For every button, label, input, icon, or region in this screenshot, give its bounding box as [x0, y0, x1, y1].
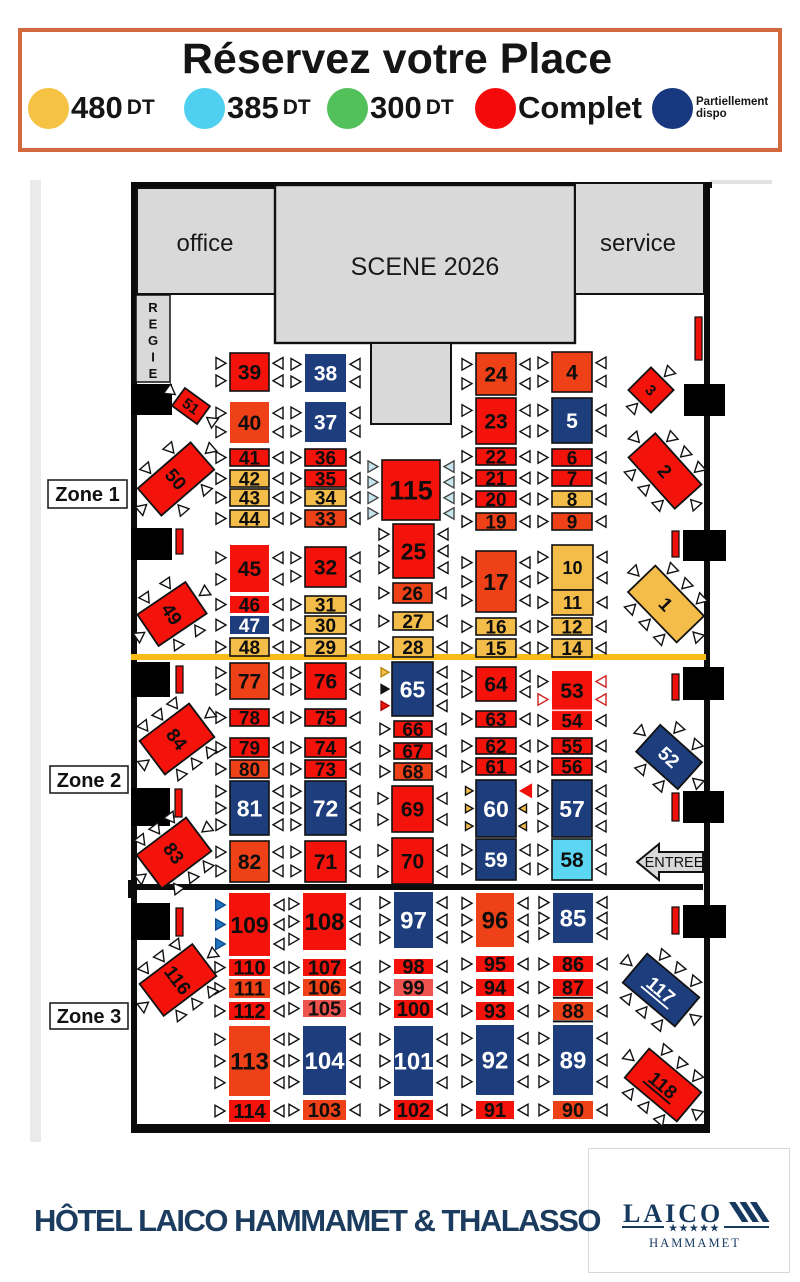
- svg-text:22: 22: [485, 447, 506, 468]
- svg-text:29: 29: [315, 638, 336, 659]
- svg-text:office: office: [177, 230, 234, 257]
- svg-text:42: 42: [239, 469, 260, 490]
- svg-text:62: 62: [485, 737, 506, 758]
- svg-text:101: 101: [393, 1049, 433, 1076]
- svg-text:4: 4: [566, 362, 578, 385]
- svg-text:15: 15: [485, 639, 507, 660]
- svg-text:34: 34: [315, 488, 337, 509]
- svg-text:25: 25: [401, 538, 427, 564]
- svg-text:26: 26: [402, 584, 423, 605]
- svg-text:82: 82: [238, 851, 261, 874]
- svg-text:54: 54: [561, 711, 583, 732]
- svg-text:58: 58: [560, 849, 584, 872]
- svg-text:67: 67: [402, 742, 423, 763]
- svg-text:37: 37: [314, 412, 337, 435]
- svg-text:59: 59: [484, 849, 507, 872]
- svg-text:70: 70: [401, 851, 424, 874]
- svg-text:105: 105: [308, 999, 341, 1021]
- svg-text:74: 74: [315, 738, 337, 759]
- svg-text:86: 86: [562, 954, 584, 976]
- svg-text:95: 95: [484, 954, 506, 976]
- svg-text:21: 21: [485, 469, 507, 490]
- svg-text:38: 38: [314, 363, 338, 386]
- svg-text:110: 110: [233, 958, 265, 980]
- svg-text:63: 63: [485, 710, 506, 731]
- svg-text:7: 7: [567, 469, 578, 490]
- svg-text:47: 47: [239, 616, 260, 637]
- svg-text:79: 79: [239, 738, 260, 759]
- svg-text:112: 112: [233, 1001, 265, 1023]
- svg-text:100: 100: [397, 999, 430, 1021]
- svg-text:E: E: [149, 317, 158, 332]
- svg-text:106: 106: [308, 978, 341, 1000]
- svg-text:57: 57: [559, 796, 585, 822]
- svg-text:111: 111: [234, 979, 265, 1001]
- svg-text:43: 43: [239, 488, 260, 509]
- svg-text:94: 94: [484, 978, 507, 1000]
- svg-text:32: 32: [314, 557, 337, 580]
- svg-text:G: G: [148, 333, 158, 348]
- svg-text:40: 40: [238, 412, 261, 435]
- svg-text:46: 46: [239, 595, 260, 616]
- svg-text:64: 64: [484, 674, 508, 697]
- svg-text:108: 108: [304, 909, 344, 936]
- svg-text:E: E: [149, 366, 158, 381]
- svg-text:Zone 1: Zone 1: [55, 484, 119, 506]
- svg-text:16: 16: [485, 617, 506, 638]
- svg-text:10: 10: [562, 558, 582, 578]
- svg-text:28: 28: [402, 638, 423, 659]
- svg-text:SCENE 2026: SCENE 2026: [351, 253, 500, 281]
- svg-text:R: R: [148, 300, 158, 315]
- svg-text:48: 48: [239, 638, 260, 659]
- svg-text:5: 5: [566, 410, 578, 433]
- svg-text:8: 8: [567, 490, 578, 511]
- svg-text:97: 97: [400, 908, 427, 935]
- svg-text:77: 77: [238, 671, 261, 694]
- svg-text:39: 39: [238, 362, 261, 385]
- svg-text:31: 31: [315, 595, 337, 616]
- svg-text:68: 68: [402, 762, 423, 783]
- svg-text:88: 88: [562, 1001, 584, 1023]
- svg-text:27: 27: [402, 612, 423, 633]
- svg-text:90: 90: [562, 1100, 584, 1122]
- svg-text:104: 104: [304, 1048, 345, 1075]
- svg-text:75: 75: [315, 708, 337, 729]
- svg-text:30: 30: [315, 616, 336, 637]
- svg-text:14: 14: [561, 639, 583, 660]
- svg-text:33: 33: [315, 509, 336, 530]
- svg-text:98: 98: [402, 957, 424, 979]
- svg-text:69: 69: [401, 799, 424, 822]
- svg-text:6: 6: [567, 448, 578, 469]
- svg-text:87: 87: [562, 978, 584, 1000]
- svg-text:24: 24: [484, 364, 508, 387]
- svg-text:19: 19: [485, 512, 506, 533]
- svg-text:89: 89: [560, 1048, 587, 1075]
- svg-text:23: 23: [484, 411, 507, 434]
- svg-text:60: 60: [483, 796, 509, 822]
- svg-text:61: 61: [485, 757, 507, 778]
- svg-text:73: 73: [315, 760, 336, 781]
- svg-text:17: 17: [483, 569, 509, 595]
- svg-text:76: 76: [314, 671, 337, 694]
- svg-text:20: 20: [485, 490, 506, 511]
- svg-text:Zone 2: Zone 2: [57, 770, 121, 792]
- svg-text:HAMMAMET: HAMMAMET: [649, 1236, 741, 1250]
- svg-text:66: 66: [402, 720, 423, 741]
- svg-text:55: 55: [561, 737, 583, 758]
- svg-text:109: 109: [230, 912, 268, 938]
- svg-text:80: 80: [239, 760, 260, 781]
- svg-text:65: 65: [400, 676, 426, 702]
- svg-text:12: 12: [561, 617, 582, 638]
- svg-text:99: 99: [402, 978, 424, 1000]
- svg-text:81: 81: [237, 795, 263, 821]
- svg-text:service: service: [600, 230, 676, 257]
- svg-text:Zone 3: Zone 3: [57, 1006, 121, 1028]
- svg-text:I: I: [151, 350, 155, 365]
- svg-text:11: 11: [563, 593, 582, 613]
- svg-text:72: 72: [313, 795, 339, 821]
- svg-text:★★★★★: ★★★★★: [668, 1223, 720, 1235]
- svg-text:ENTREE: ENTREE: [645, 855, 704, 871]
- svg-text:114: 114: [233, 1101, 266, 1123]
- svg-text:115: 115: [389, 476, 433, 506]
- svg-text:78: 78: [239, 708, 260, 729]
- svg-text:44: 44: [239, 509, 261, 530]
- svg-text:113: 113: [230, 1049, 269, 1076]
- svg-text:41: 41: [239, 448, 261, 469]
- svg-text:9: 9: [567, 512, 578, 533]
- svg-text:56: 56: [561, 757, 582, 778]
- svg-text:107: 107: [308, 958, 341, 980]
- svg-text:71: 71: [314, 851, 338, 874]
- svg-text:102: 102: [397, 1100, 430, 1122]
- svg-text:93: 93: [484, 1001, 506, 1023]
- svg-text:96: 96: [482, 908, 509, 935]
- svg-text:91: 91: [484, 1100, 506, 1122]
- svg-text:53: 53: [560, 680, 583, 703]
- svg-text:103: 103: [308, 1100, 341, 1122]
- svg-text:35: 35: [315, 469, 337, 490]
- svg-text:92: 92: [482, 1048, 509, 1075]
- svg-text:36: 36: [315, 448, 336, 469]
- svg-text:45: 45: [238, 558, 262, 581]
- svg-text:85: 85: [560, 906, 587, 933]
